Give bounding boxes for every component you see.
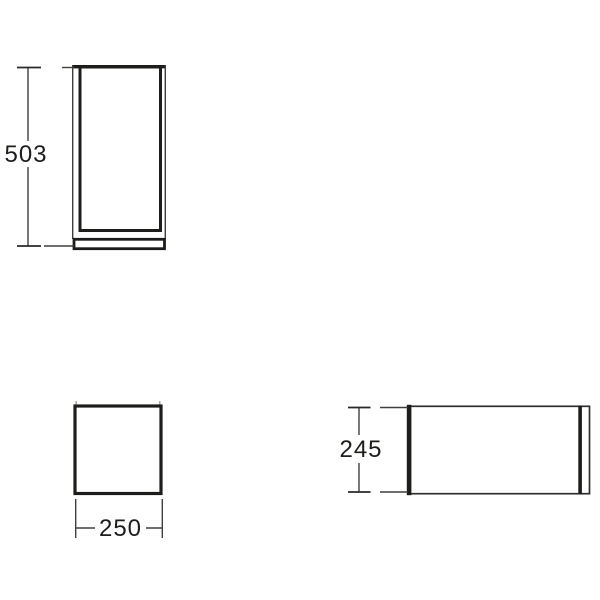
front-plinth (74, 239, 165, 248)
side-view-right-panel-edge (578, 406, 582, 495)
front-height-dimension: 503 (4, 68, 74, 247)
front-door-panel (80, 67, 161, 231)
side-view (407, 405, 590, 495)
dimension-label-depth: 245 (339, 436, 382, 463)
side-view-outline (409, 406, 590, 493)
front-view (72, 65, 166, 249)
top-view-outline (75, 406, 161, 494)
dimension-label-height: 503 (4, 141, 47, 168)
dimension-label-width: 250 (99, 515, 142, 542)
top-width-dimension: 250 (76, 499, 163, 542)
side-view-left-panel-edge (407, 405, 412, 495)
top-view (75, 401, 161, 494)
dimension-drawing: 503 250 245 (0, 0, 600, 600)
technical-drawing-canvas: 503 250 245 (0, 0, 600, 600)
side-depth-dimension: 245 (339, 408, 407, 493)
